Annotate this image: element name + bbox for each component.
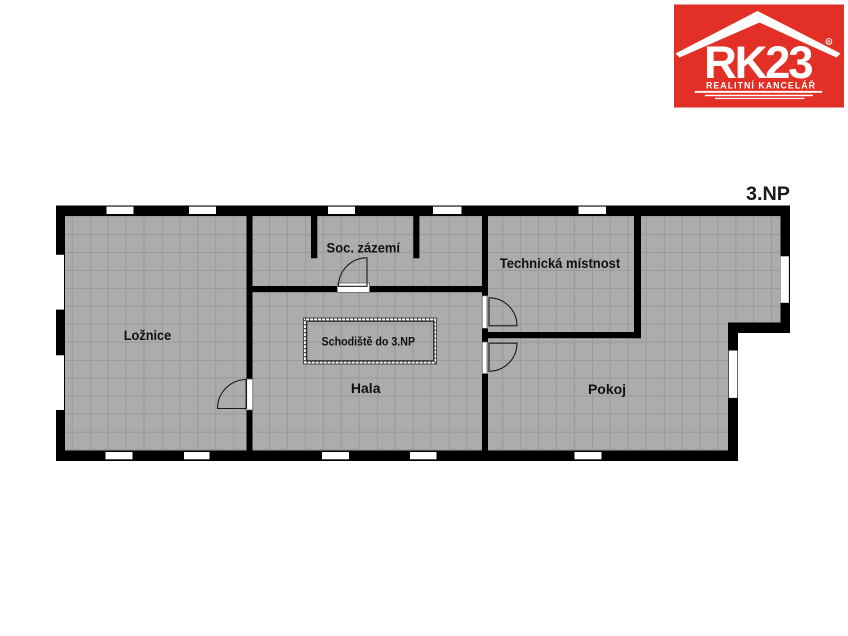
svg-text:Soc. zázemí: Soc. zázemí — [327, 240, 402, 256]
svg-text:Pokoj: Pokoj — [588, 381, 626, 397]
svg-text:Ložnice: Ložnice — [124, 327, 172, 343]
svg-text:Technická místnost: Technická místnost — [500, 255, 621, 271]
svg-text:3.NP: 3.NP — [746, 184, 790, 205]
svg-text:REALITNÍ KANCELÁŘ: REALITNÍ KANCELÁŘ — [706, 80, 816, 91]
svg-text:Hala: Hala — [351, 380, 381, 396]
svg-text:Schodiště do 3.NP: Schodiště do 3.NP — [322, 335, 416, 349]
